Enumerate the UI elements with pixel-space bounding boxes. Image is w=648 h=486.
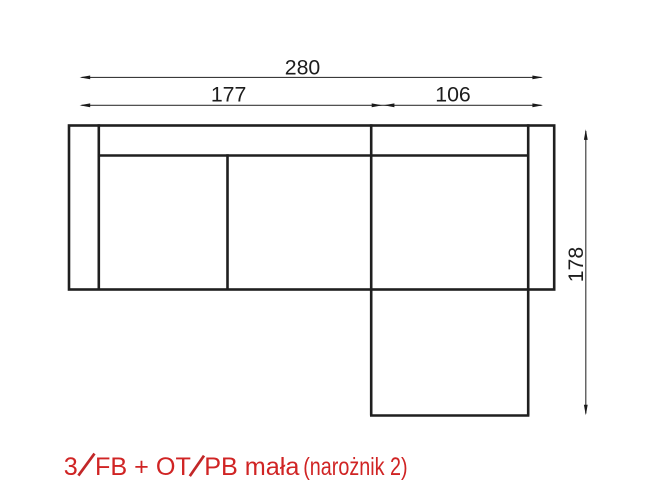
svg-text:PB mała: PB mała xyxy=(204,453,300,481)
svg-text:(narożnik 2): (narożnik 2) xyxy=(303,451,407,480)
svg-text:FB + OT: FB + OT xyxy=(95,453,191,481)
svg-text:177: 177 xyxy=(211,83,247,107)
svg-text:106: 106 xyxy=(435,83,471,107)
svg-text:178: 178 xyxy=(564,247,588,283)
svg-text:280: 280 xyxy=(285,56,321,80)
svg-text:3: 3 xyxy=(64,453,78,481)
